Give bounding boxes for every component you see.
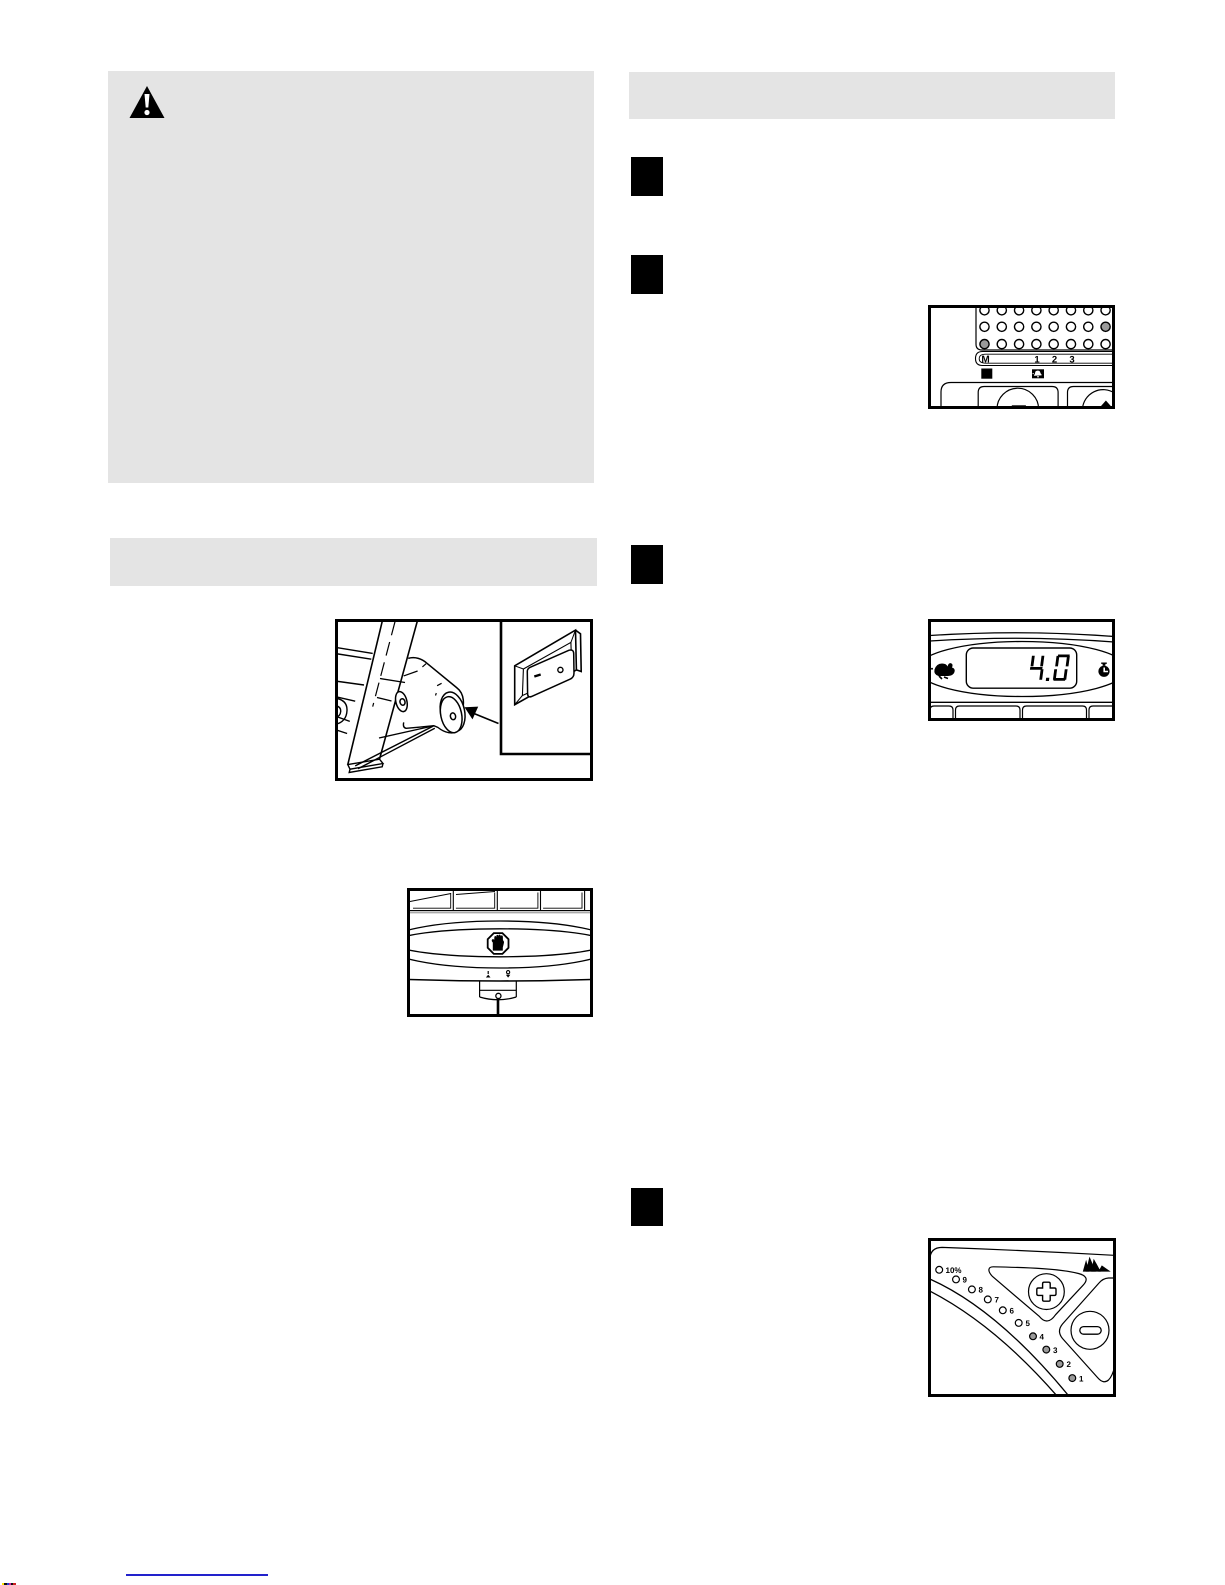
svg-text:8: 8 — [979, 1286, 984, 1295]
svg-text:M: M — [981, 355, 989, 366]
svg-text:2: 2 — [1052, 355, 1057, 366]
svg-text:6: 6 — [1010, 1307, 1015, 1316]
svg-text:4: 4 — [1040, 1333, 1045, 1342]
svg-text:3: 3 — [1069, 355, 1074, 366]
svg-text:9: 9 — [963, 1276, 968, 1285]
svg-text:3: 3 — [1053, 1346, 1058, 1355]
svg-text:5: 5 — [1026, 1319, 1031, 1328]
svg-text:2: 2 — [1067, 1360, 1072, 1369]
svg-text:1: 1 — [1079, 1375, 1084, 1384]
svg-text:10%: 10% — [946, 1266, 962, 1275]
svg-text:1: 1 — [1034, 355, 1040, 366]
svg-text:7: 7 — [995, 1296, 1000, 1305]
